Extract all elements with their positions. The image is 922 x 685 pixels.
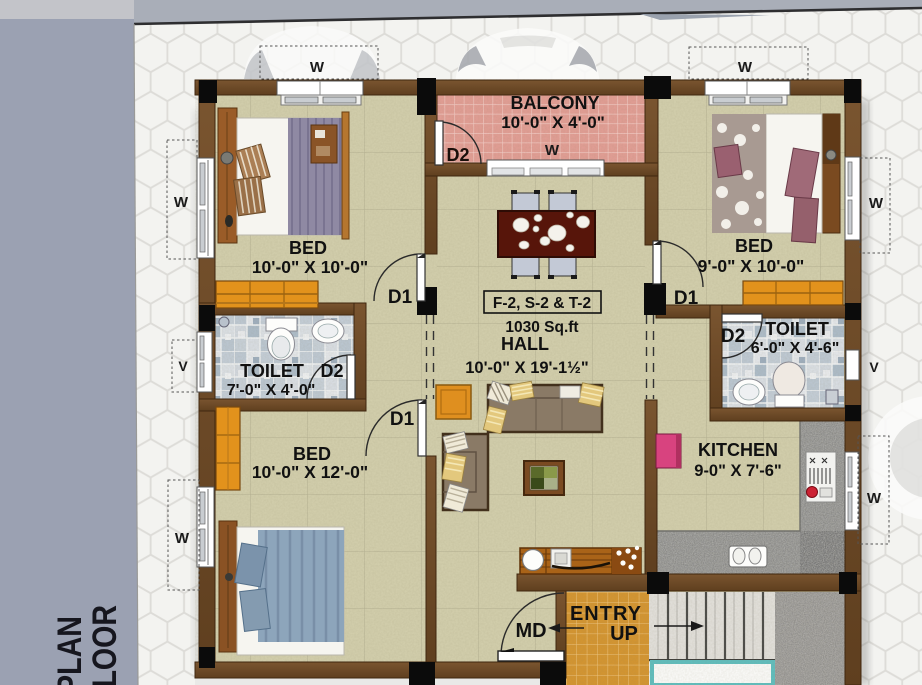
svg-text:W: W xyxy=(310,59,325,76)
svg-text:W: W xyxy=(545,142,560,159)
svg-text:W: W xyxy=(175,530,190,547)
svg-text:HALL: HALL xyxy=(501,334,549,354)
svg-text:6'-0" X 4'-6": 6'-0" X 4'-6" xyxy=(751,340,840,357)
svg-text:D1: D1 xyxy=(674,288,699,309)
svg-text:BED: BED xyxy=(293,444,331,464)
svg-text:BED: BED xyxy=(289,238,327,258)
svg-text:W: W xyxy=(867,490,882,507)
svg-text:10'-0" X 19'-1½": 10'-0" X 19'-1½" xyxy=(465,359,588,377)
svg-text:10'-0" X 4'-0": 10'-0" X 4'-0" xyxy=(501,113,605,132)
svg-text:D2: D2 xyxy=(446,145,469,165)
svg-text:W: W xyxy=(174,194,189,211)
svg-text:TOILET: TOILET xyxy=(765,319,829,339)
svg-text:9-0" X 7'-6": 9-0" X 7'-6" xyxy=(694,462,781,480)
svg-text:W: W xyxy=(869,195,884,212)
svg-text:D1: D1 xyxy=(390,409,415,430)
svg-text:V: V xyxy=(869,359,879,375)
svg-text:FLOOR: FLOOR xyxy=(86,605,124,685)
svg-text:D2: D2 xyxy=(320,361,343,381)
svg-text:F-2, S-2 & T-2: F-2, S-2 & T-2 xyxy=(493,295,591,312)
svg-text:10'-0" X 12'-0": 10'-0" X 12'-0" xyxy=(252,462,368,482)
svg-text:BALCONY: BALCONY xyxy=(511,93,600,113)
svg-text:PLAN: PLAN xyxy=(51,616,89,685)
svg-text:MD: MD xyxy=(515,620,546,642)
svg-text:9'-0" X 10'-0": 9'-0" X 10'-0" xyxy=(698,256,805,276)
svg-text:TOILET: TOILET xyxy=(240,361,304,381)
svg-text:D1: D1 xyxy=(388,287,413,308)
svg-text:D2: D2 xyxy=(721,326,745,347)
svg-text:BED: BED xyxy=(735,236,773,256)
svg-text:ENTRY: ENTRY xyxy=(570,603,642,625)
svg-text:UP: UP xyxy=(610,623,638,645)
svg-text:KITCHEN: KITCHEN xyxy=(698,440,778,460)
svg-text:V: V xyxy=(178,358,188,374)
svg-text:W: W xyxy=(738,59,753,76)
svg-text:7'-0" X 4'-0": 7'-0" X 4'-0" xyxy=(227,382,316,399)
svg-text:10'-0" X 10'-0": 10'-0" X 10'-0" xyxy=(252,257,368,277)
